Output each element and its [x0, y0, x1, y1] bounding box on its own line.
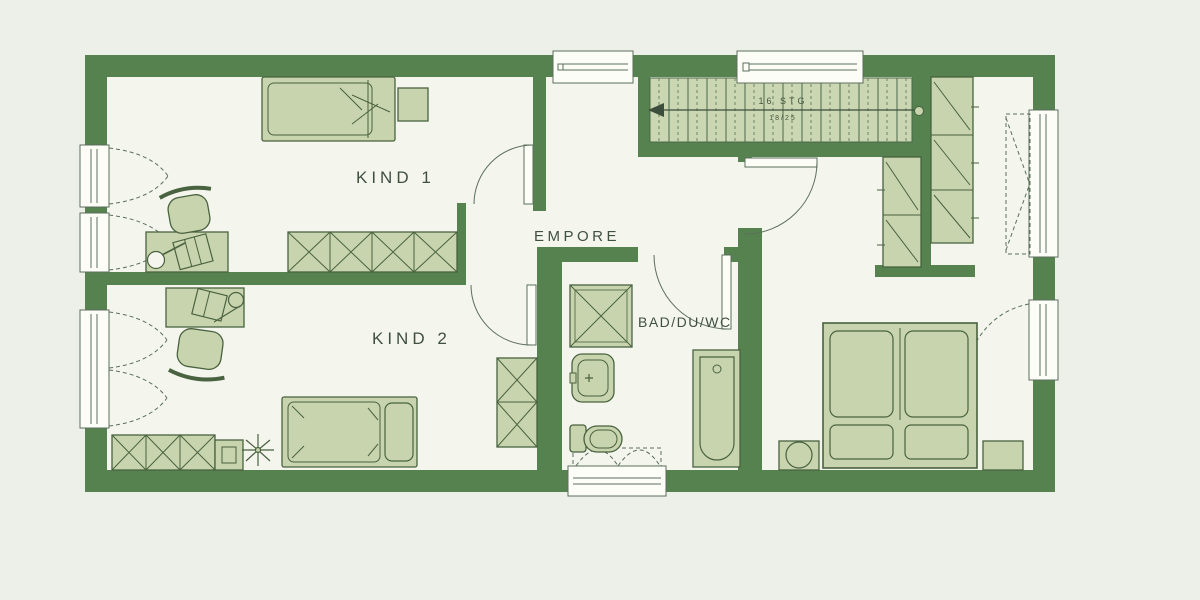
wall-bath-north: [562, 247, 638, 262]
single-bed-icon: [282, 397, 417, 467]
bathtub-icon: [693, 350, 740, 467]
wall-stair-south: [638, 142, 920, 157]
shower-icon: [570, 285, 632, 347]
bad-furniture: [570, 285, 740, 467]
wall-bath-west: [537, 247, 562, 470]
washbasin-icon: [570, 354, 614, 402]
window-bottom-bath: [568, 466, 666, 496]
door-kind2: [471, 285, 536, 345]
window-right-schlafen-2: [1029, 300, 1058, 380]
wardrobe-x-icon: [288, 232, 457, 272]
window-top-1: [553, 51, 633, 83]
wall-kind1-kind2: [85, 272, 466, 285]
floorplan-graphic: 16 STG 18/25: [0, 0, 1200, 600]
window-top-2: [737, 51, 863, 83]
floorplan-canvas: 16 STG 18/25 KIND 1 KIND 2 EMPORE BAD/DU…: [0, 0, 1200, 600]
plant-icon: [242, 434, 274, 466]
door-schlafen: [745, 158, 817, 234]
nightstand-lamp-icon: [779, 441, 819, 470]
door-kind1: [474, 145, 533, 204]
stair-annotation-top: 16 STG: [758, 96, 807, 106]
desk-chair-icon: [159, 184, 218, 236]
desk-icon: [166, 288, 244, 327]
window-left-kind1-a: [80, 145, 109, 207]
wall-stair-west: [638, 77, 650, 142]
room-label-empore: EMPORE: [534, 228, 644, 245]
window-left-kind2: [80, 310, 109, 428]
double-bed-icon: [823, 323, 977, 468]
wardrobe-diagonal-icon-east: [931, 77, 979, 243]
wardrobe-x-icon-tall: [497, 358, 537, 447]
window-left-kind1-b: [80, 213, 109, 272]
side-table-icon: [398, 88, 428, 121]
staircase-icon: [648, 78, 924, 142]
wardrobe-x-icon: [112, 435, 215, 470]
stair-annotation-bottom: 18/25: [769, 115, 797, 122]
desk-chair-icon: [168, 326, 230, 382]
room-label-kind1: KIND 1: [356, 168, 456, 188]
kind2-furniture: [112, 288, 537, 470]
wardrobe-diagonal-icon-west: [877, 157, 921, 267]
desk-icon: [146, 232, 228, 272]
wall-kind1-jog: [457, 203, 466, 285]
window-right-schlafen-1: [1029, 110, 1058, 257]
nightstand-icon: [983, 441, 1023, 470]
wall-kind1-east: [533, 77, 546, 211]
desk-lamp-icon: [148, 252, 165, 269]
wall-bath-east: [738, 228, 762, 470]
room-label-bad: BAD/DU/WC: [638, 314, 768, 330]
single-bed-icon: [262, 77, 395, 141]
room-label-kind2: KIND 2: [372, 329, 472, 349]
cabinet-icon: [215, 440, 243, 470]
toilet-icon: [570, 425, 622, 452]
